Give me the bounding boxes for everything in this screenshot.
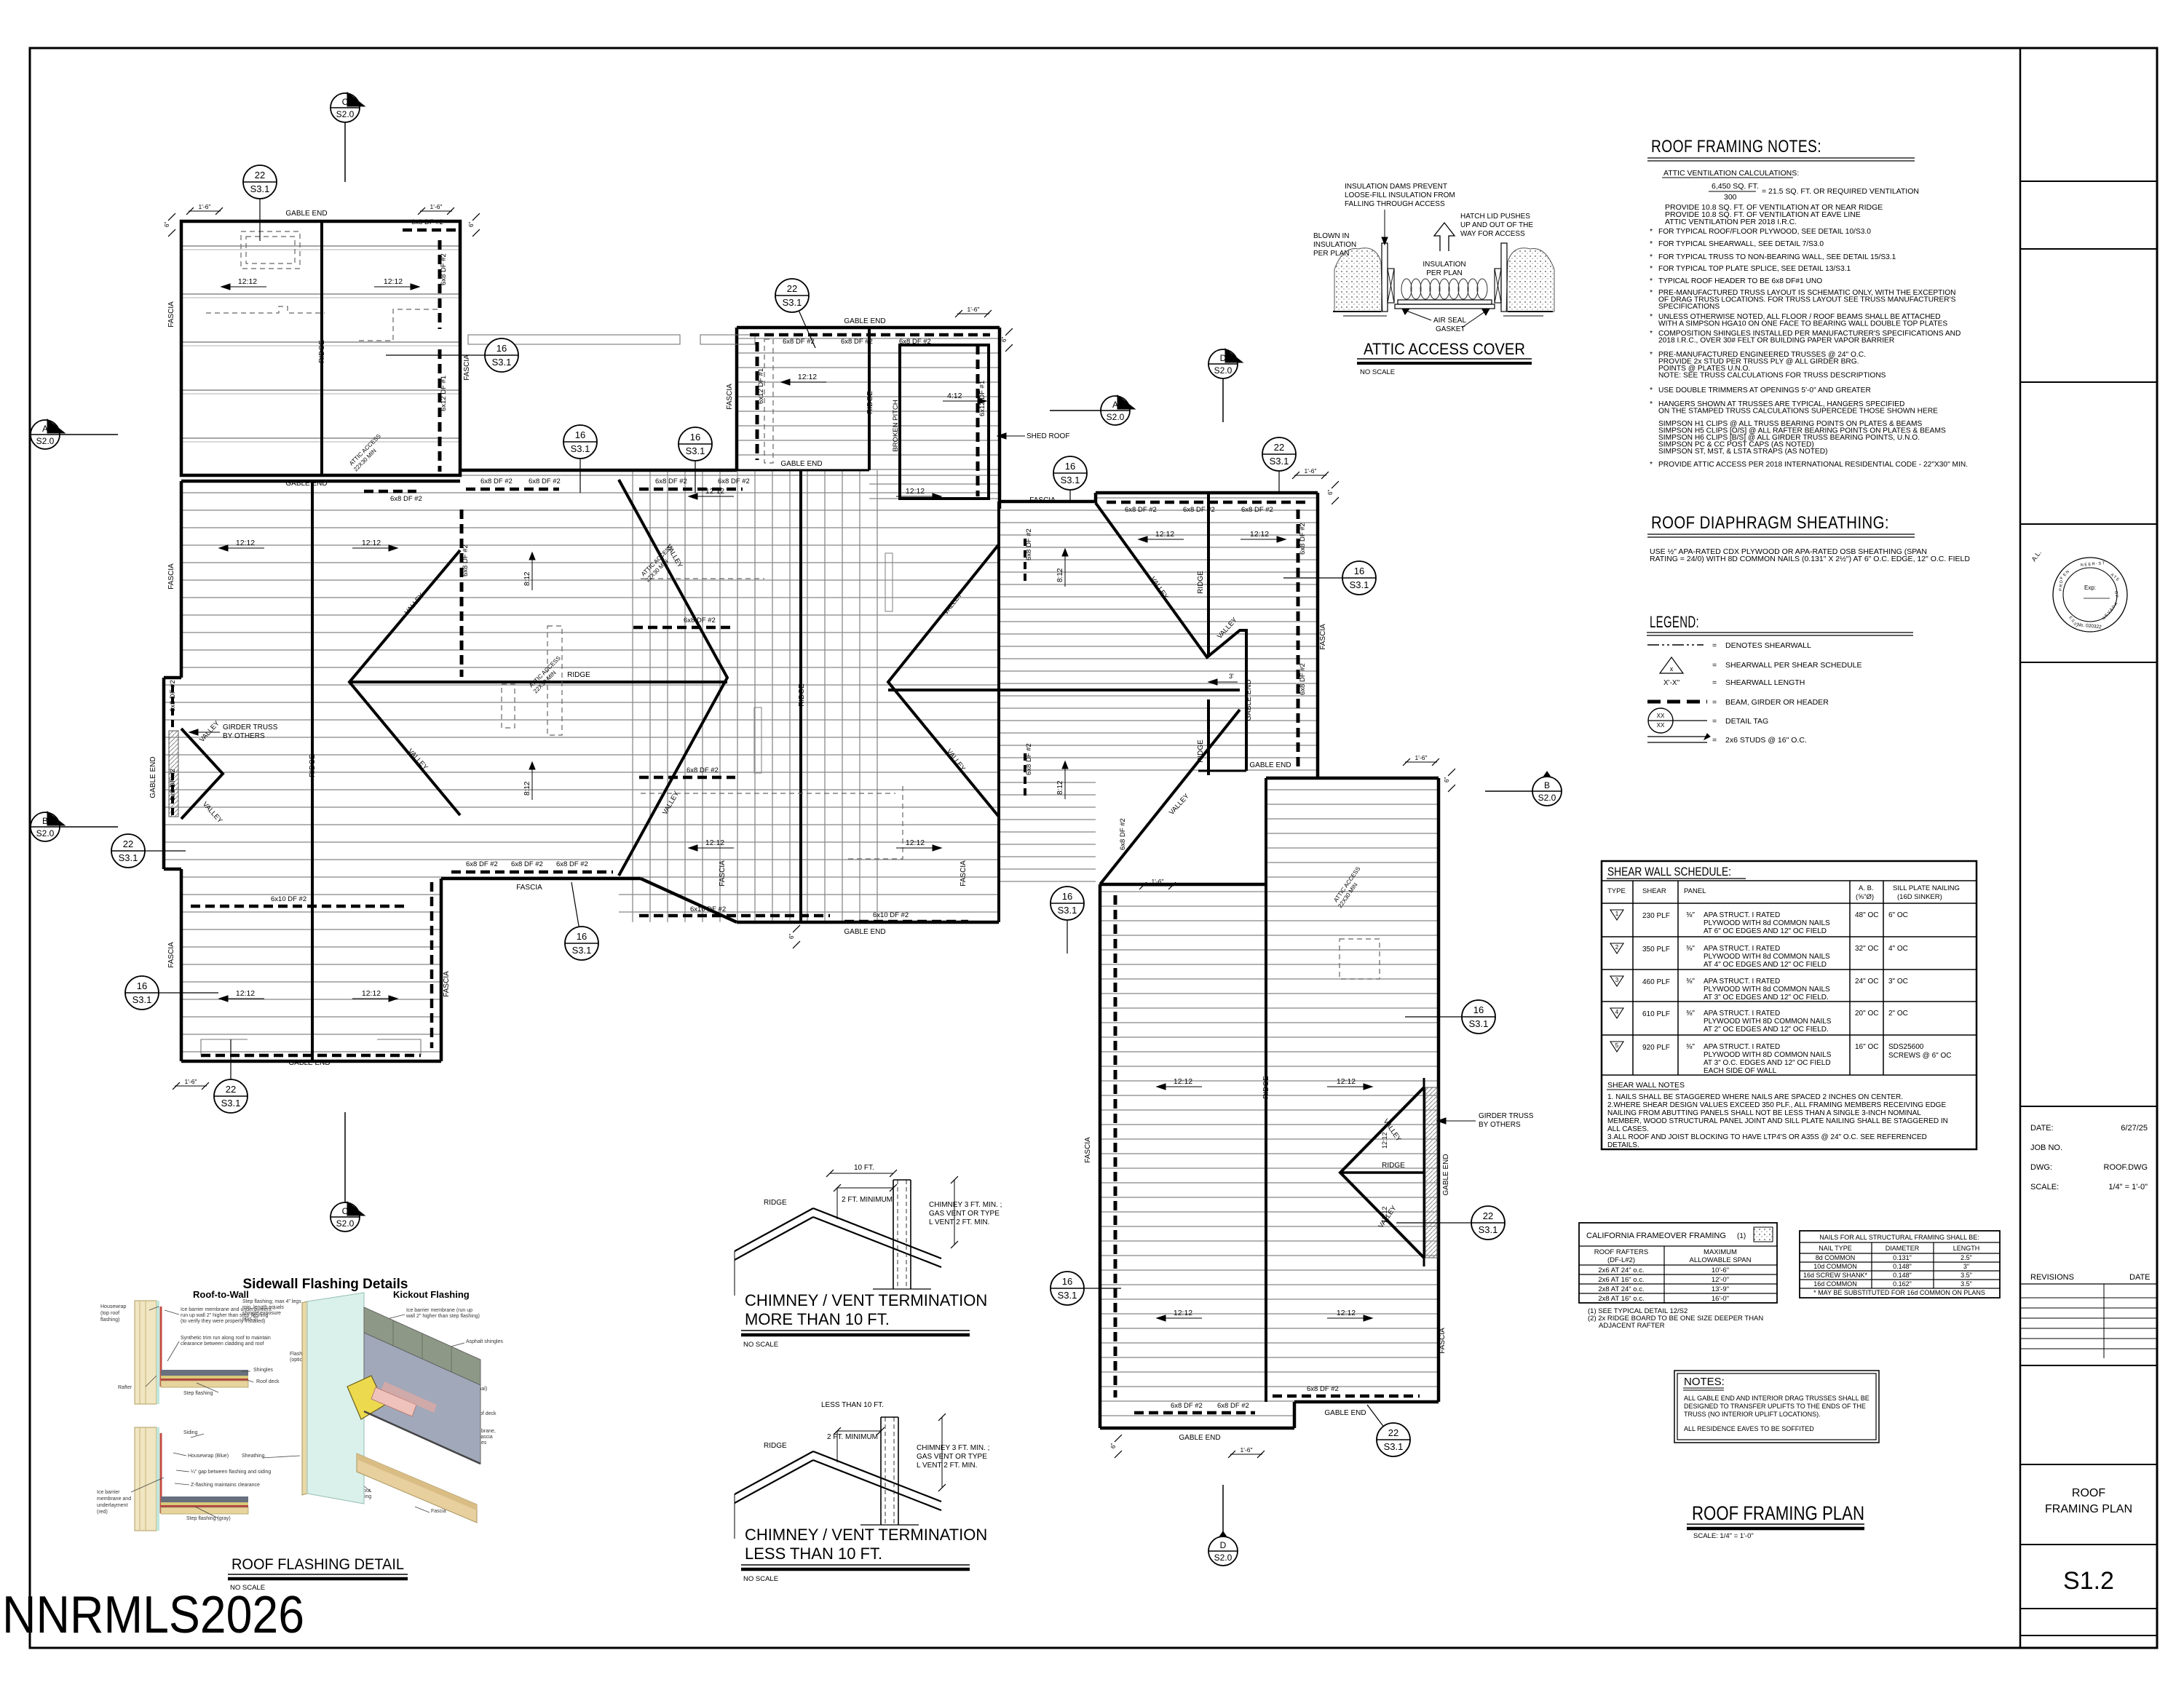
svg-text:3: 3	[1615, 977, 1619, 983]
svg-text:APA STRUCT. I RATED: APA STRUCT. I RATED	[1704, 945, 1780, 953]
svg-text:S3.1: S3.1	[1469, 1018, 1489, 1029]
svg-text:NAILS FOR ALL STRUCTURAL FRAMI: NAILS FOR ALL STRUCTURAL FRAMING SHALL B…	[1819, 1234, 1979, 1241]
svg-text:6x8 DF #2: 6x8 DF #2	[687, 766, 719, 774]
svg-text:NO SCALE: NO SCALE	[743, 1341, 778, 1349]
svg-text:=: =	[1712, 717, 1717, 726]
svg-text:SHEAR WALL SCHEDULE:: SHEAR WALL SCHEDULE:	[1607, 865, 1731, 879]
svg-text:APA STRUCT. I RATED: APA STRUCT. I RATED	[1704, 978, 1780, 986]
svg-text:10d COMMON: 10d COMMON	[1813, 1263, 1857, 1270]
svg-text:WAY FOR ACCESS: WAY FOR ACCESS	[1460, 230, 1525, 238]
svg-text:1. NAILS SHALL BE STAGGERED WH: 1. NAILS SHALL BE STAGGERED WHERE NAILS …	[1607, 1093, 1903, 1101]
svg-text:Ice barrier: Ice barrier	[97, 1490, 120, 1495]
svg-text:6,450 SQ. FT.: 6,450 SQ. FT.	[1712, 182, 1759, 191]
svg-text:ROOF FRAMING NOTES:: ROOF FRAMING NOTES:	[1651, 137, 1821, 156]
svg-text:RIDGE: RIDGE	[866, 391, 874, 414]
svg-text:SHEARWALL PER SHEAR SCHEDULE: SHEARWALL PER SHEAR SCHEDULE	[1725, 661, 1862, 670]
svg-text:SHED ROOF: SHED ROOF	[1026, 432, 1069, 440]
svg-text:4: 4	[1615, 1009, 1619, 1015]
svg-text:NO SCALE: NO SCALE	[1360, 368, 1395, 376]
svg-text:SDS25600: SDS25600	[1888, 1043, 1924, 1051]
svg-text:S3.1: S3.1	[132, 994, 152, 1005]
svg-text:*: *	[1650, 460, 1653, 469]
svg-text:22: 22	[1483, 1210, 1493, 1221]
svg-text:22: 22	[787, 283, 797, 294]
svg-text:S2.0: S2.0	[36, 436, 55, 446]
svg-text:6x12 DF #1: 6x12 DF #1	[440, 376, 448, 411]
svg-text:(16D SINKER): (16D SINKER)	[1897, 893, 1942, 901]
svg-text:*: *	[1650, 253, 1653, 261]
svg-text:6": 6"	[468, 222, 475, 227]
svg-text:GIRDER TRUSS: GIRDER TRUSS	[1479, 1112, 1534, 1120]
svg-text:6x8 DF #2: 6x8 DF #2	[480, 477, 513, 485]
svg-text:FASCIA: FASCIA	[1439, 1328, 1447, 1354]
svg-text:*: *	[1650, 277, 1653, 285]
svg-text:PANEL: PANEL	[1684, 887, 1706, 895]
svg-text:ROOF RAFTERS: ROOF RAFTERS	[1594, 1248, 1648, 1256]
svg-text:AT 4" OC EDGES AND 12" OC FIEL: AT 4" OC EDGES AND 12" OC FIELD	[1704, 961, 1827, 969]
svg-text:S3.1: S3.1	[571, 443, 590, 454]
svg-text:1'-6": 1'-6"	[1415, 754, 1428, 761]
svg-text:GABLE END: GABLE END	[844, 928, 885, 936]
svg-text:Sidewall Flashing Details: Sidewall Flashing Details	[242, 1277, 408, 1292]
svg-text:SCREWS @ 6" OC: SCREWS @ 6" OC	[1888, 1052, 1952, 1060]
svg-text:CHIMNEY 3 FT. MIN. ;: CHIMNEY 3 FT. MIN. ;	[929, 1201, 1002, 1209]
svg-text:460 PLF: 460 PLF	[1642, 978, 1670, 986]
svg-text:B: B	[42, 816, 48, 826]
svg-text:0.148": 0.148"	[1893, 1263, 1912, 1270]
svg-text:RIDGE: RIDGE	[1197, 740, 1205, 763]
svg-text:6": 6"	[164, 222, 170, 227]
svg-text:TRUSS (NO INTERIOR UPLIFT LOCA: TRUSS (NO INTERIOR UPLIFT LOCATIONS).	[1684, 1411, 1821, 1418]
svg-text:membrane and: membrane and	[97, 1496, 131, 1502]
svg-text:1'-6": 1'-6"	[199, 203, 211, 210]
svg-text:⅜": ⅜"	[1686, 945, 1695, 953]
svg-text:DESIGNED TO TRANSFER UPLIFTS T: DESIGNED TO TRANSFER UPLIFTS TO THE ENDS…	[1684, 1403, 1866, 1410]
svg-text:¼" gap between flashing and si: ¼" gap between flashing and siding	[191, 1470, 271, 1475]
svg-text:D: D	[1220, 353, 1227, 363]
svg-text:6/27/25: 6/27/25	[2121, 1124, 2148, 1133]
svg-text:S3.1: S3.1	[686, 445, 705, 456]
svg-text:B: B	[1544, 780, 1550, 790]
svg-text:RIDGE: RIDGE	[1262, 1076, 1270, 1099]
svg-text:=: =	[1712, 678, 1717, 687]
svg-text:PER PLAN: PER PLAN	[1426, 269, 1462, 277]
svg-text:Step flashing; max 4" legs: Step flashing; max 4" legs	[242, 1299, 301, 1304]
svg-text:32" OC: 32" OC	[1855, 945, 1878, 953]
svg-text:6x8 DF #2: 6x8 DF #2	[169, 680, 177, 712]
svg-text:16: 16	[1354, 566, 1364, 576]
svg-text:⅜": ⅜"	[1686, 1043, 1695, 1051]
svg-text:6": 6"	[1110, 1443, 1117, 1448]
svg-text:S3.1: S3.1	[1058, 905, 1077, 916]
svg-text:*: *	[1650, 350, 1653, 359]
svg-text:S3.1: S3.1	[572, 945, 592, 956]
svg-text:AT 6" OC EDGES AND 12" OC FIEL: AT 6" OC EDGES AND 12" OC FIELD	[1704, 927, 1827, 935]
svg-text:*: *	[1650, 386, 1653, 394]
svg-text:22: 22	[255, 170, 265, 181]
svg-text:C: C	[342, 97, 349, 107]
svg-text:DATE:: DATE:	[2030, 1124, 2054, 1133]
svg-text:2x8 AT 24" o.c.: 2x8 AT 24" o.c.	[1598, 1285, 1644, 1293]
svg-text:NAILING FROM ABUTTING PANELS S: NAILING FROM ABUTTING PANELS SHALL NOT B…	[1607, 1109, 1921, 1117]
svg-text:22: 22	[123, 838, 133, 849]
svg-text:Sheathing: Sheathing	[242, 1454, 265, 1459]
svg-text:13'-9": 13'-9"	[1712, 1285, 1729, 1293]
svg-text:16: 16	[1473, 1004, 1484, 1015]
svg-text:TYPE: TYPE	[1607, 887, 1626, 895]
svg-text:CHIMNEY / VENT TERMINATION: CHIMNEY / VENT TERMINATION	[745, 1291, 987, 1309]
svg-text:16: 16	[1062, 1276, 1072, 1287]
svg-text:6x8 DF #2: 6x8 DF #2	[841, 338, 873, 346]
svg-text:S3.1: S3.1	[1350, 579, 1369, 590]
svg-text:S3.1: S3.1	[783, 297, 802, 308]
svg-text:FASCIA: FASCIA	[167, 942, 175, 968]
svg-text:1: 1	[1615, 911, 1619, 917]
svg-text:APA STRUCT. I RATED: APA STRUCT. I RATED	[1704, 911, 1780, 919]
svg-text:4" OC: 4" OC	[1888, 945, 1908, 953]
svg-text:ADJACENT RAFTER: ADJACENT RAFTER	[1599, 1322, 1665, 1330]
svg-text:16: 16	[575, 429, 585, 440]
svg-text:24" OC: 24" OC	[1855, 978, 1878, 986]
svg-text:12:12: 12:12	[798, 373, 817, 381]
svg-text:*: *	[1650, 329, 1653, 338]
svg-text:GABLE END: GABLE END	[285, 480, 327, 488]
svg-text:=: =	[1712, 661, 1717, 670]
svg-text:PROVIDE ATTIC ACCESS PER 2018: PROVIDE ATTIC ACCESS PER 2018 INTERNATIO…	[1658, 461, 1968, 469]
svg-text:L VENT 2 FT. MIN.: L VENT 2 FT. MIN.	[917, 1462, 977, 1470]
svg-text:16: 16	[577, 931, 587, 942]
svg-text:XX: XX	[1657, 722, 1665, 729]
svg-text:6x12 DF #1: 6x12 DF #1	[757, 368, 765, 404]
svg-text:INSULATION: INSULATION	[1423, 261, 1465, 269]
svg-text:12:12: 12:12	[362, 539, 381, 547]
svg-text:Housewrap (Blue): Housewrap (Blue)	[188, 1454, 229, 1459]
svg-text:6x8 DF #2: 6x8 DF #2	[684, 616, 716, 625]
svg-text:RIDGE: RIDGE	[567, 671, 590, 679]
svg-text:GABLE END: GABLE END	[780, 460, 822, 468]
svg-text:12:12: 12:12	[1250, 530, 1269, 539]
svg-text:S2.0: S2.0	[1214, 1553, 1233, 1563]
svg-text:SPECIFICATIONS: SPECIFICATIONS	[1658, 303, 1720, 311]
svg-text:1/4" = 1'-0": 1/4" = 1'-0"	[2108, 1183, 2148, 1192]
svg-text:FASCIA: FASCIA	[719, 860, 727, 887]
svg-text:Shingles: Shingles	[253, 1368, 273, 1373]
svg-text:6x8 DF #2: 6x8 DF #2	[1299, 523, 1307, 555]
svg-text:Step flashing (gray): Step flashing (gray)	[186, 1516, 231, 1521]
svg-text:CHIMNEY / VENT TERMINATION: CHIMNEY / VENT TERMINATION	[745, 1526, 987, 1544]
svg-text:S2.0: S2.0	[336, 109, 355, 119]
svg-text:ALL GABLE END AND INTERIOR DRA: ALL GABLE END AND INTERIOR DRAG TRUSSES …	[1684, 1395, 1870, 1402]
svg-text:ALL CASES.: ALL CASES.	[1607, 1125, 1649, 1133]
svg-text:*: *	[1650, 264, 1653, 273]
svg-text:22: 22	[226, 1084, 236, 1095]
svg-text:6x8 DF #2: 6x8 DF #2	[1025, 743, 1033, 775]
svg-text:12:12: 12:12	[906, 487, 925, 496]
svg-text:6x8 DF #2: 6x8 DF #2	[1183, 506, 1215, 514]
svg-text:RIDGE: RIDGE	[764, 1442, 787, 1450]
svg-text:ROOF FRAMING PLAN: ROOF FRAMING PLAN	[1692, 1502, 1864, 1524]
svg-text:⅜": ⅜"	[1686, 911, 1695, 919]
svg-text:A. B.: A. B.	[1859, 884, 1874, 892]
svg-text:NOTES:: NOTES:	[1684, 1376, 1725, 1388]
svg-text:REVISIONS: REVISIONS	[2030, 1273, 2074, 1282]
svg-text:S1.2: S1.2	[2063, 1567, 2114, 1595]
svg-text:FASCIA: FASCIA	[516, 884, 542, 892]
svg-text:plus 2": plus 2"	[242, 1317, 258, 1322]
svg-text:16" OC: 16" OC	[1855, 1043, 1878, 1051]
svg-text:6x10 DF #2: 6x10 DF #2	[271, 895, 306, 903]
svg-text:DETAILS.: DETAILS.	[1607, 1141, 1639, 1149]
svg-text:⅜": ⅜"	[1686, 978, 1695, 986]
svg-text:AIR SEAL: AIR SEAL	[1433, 317, 1466, 325]
svg-text:WITH A SIMPSON HGA10 ON ONE FA: WITH A SIMPSON HGA10 ON ONE FACE TO BEAR…	[1658, 320, 1947, 328]
svg-text:NO SCALE: NO SCALE	[743, 1575, 778, 1583]
svg-text:GAS VENT OR TYPE: GAS VENT OR TYPE	[929, 1210, 1000, 1218]
svg-text:6x8 DF #2: 6x8 DF #2	[655, 477, 687, 485]
svg-text:6x8 DF #2: 6x8 DF #2	[169, 769, 177, 801]
svg-text:LENGTH: LENGTH	[1953, 1245, 1980, 1252]
svg-text:10 FT.: 10 FT.	[854, 1164, 874, 1172]
svg-text:FOR TYPICAL TOP PLATE SPLICE,: FOR TYPICAL TOP PLATE SPLICE, SEE DETAIL…	[1658, 265, 1851, 273]
svg-text:16'-0": 16'-0"	[1712, 1295, 1729, 1303]
svg-text:C: C	[342, 1206, 349, 1216]
svg-text:TYPICAL ROOF HEADER TO BE 6x8: TYPICAL ROOF HEADER TO BE 6x8 DF#1 UNO	[1658, 277, 1822, 285]
svg-text:6x8 DF #2: 6x8 DF #2	[1025, 528, 1033, 560]
svg-text:12:12: 12:12	[384, 277, 403, 286]
svg-text:6x8 DF #2: 6x8 DF #2	[466, 860, 498, 868]
svg-text:GABLE END: GABLE END	[285, 210, 327, 218]
svg-text:Roof deck: Roof deck	[256, 1379, 280, 1384]
svg-text:48" OC: 48" OC	[1855, 911, 1878, 919]
svg-text:FRAMING PLAN: FRAMING PLAN	[2045, 1503, 2132, 1515]
svg-text:AT 3" O.C. EDGES AND 12" OC FI: AT 3" O.C. EDGES AND 12" OC FIELD	[1704, 1059, 1831, 1067]
svg-text:6x8 DF #2: 6x8 DF #2	[1125, 506, 1157, 514]
svg-text:Asphalt shingles: Asphalt shingles	[466, 1339, 503, 1344]
svg-text:EACH SIDE OF WALL: EACH SIDE OF WALL	[1704, 1067, 1777, 1075]
svg-text:6x8 DF #2: 6x8 DF #2	[556, 860, 588, 868]
svg-text:S3.1: S3.1	[119, 852, 138, 863]
svg-text:SILL PLATE NAILING: SILL PLATE NAILING	[1893, 884, 1960, 892]
svg-text:920 PLF: 920 PLF	[1642, 1044, 1670, 1052]
svg-text:GABLE END: GABLE END	[1324, 1409, 1366, 1417]
svg-text:FALLING THROUGH ACCESS: FALLING THROUGH ACCESS	[1345, 200, 1445, 208]
svg-text:2x6 STUDS @ 16" O.C.: 2x6 STUDS @ 16" O.C.	[1725, 736, 1807, 745]
svg-text:flashing): flashing)	[100, 1317, 119, 1323]
svg-text:LOOSE-FILL INSULATION FROM: LOOSE-FILL INSULATION FROM	[1345, 191, 1455, 199]
svg-text:2: 2	[1615, 944, 1619, 951]
svg-text:1'-6": 1'-6"	[1152, 878, 1164, 885]
svg-text:underlayment: underlayment	[97, 1503, 127, 1508]
svg-text:APA STRUCT. I RATED: APA STRUCT. I RATED	[1704, 1010, 1780, 1018]
svg-text:S2.0: S2.0	[1538, 793, 1556, 803]
svg-text:12:12: 12:12	[906, 838, 925, 847]
svg-text:ROOF.DWG: ROOF.DWG	[2104, 1163, 2148, 1172]
svg-text:S3.1: S3.1	[1384, 1441, 1404, 1452]
svg-text:S2.0: S2.0	[1214, 365, 1233, 376]
svg-text:GABLE END: GABLE END	[844, 317, 885, 325]
svg-text:SCALE: 1/4" = 1'-0": SCALE: 1/4" = 1'-0"	[1693, 1532, 1754, 1540]
svg-text:MORE THAN 10 FT.: MORE THAN 10 FT.	[745, 1310, 890, 1328]
svg-text:APA STRUCT. I RATED: APA STRUCT. I RATED	[1704, 1043, 1780, 1051]
svg-text:DIAMETER: DIAMETER	[1886, 1245, 1920, 1252]
svg-text:RATING = 24/0) WITH 8D COMMON: RATING = 24/0) WITH 8D COMMON NAILS (0.1…	[1650, 555, 1970, 563]
svg-text:ROOF: ROOF	[2072, 1487, 2105, 1499]
svg-text:INSULATION DAMS PREVENT: INSULATION DAMS PREVENT	[1345, 183, 1447, 191]
svg-text:= 21.5 SQ. FT. OR REQUIRED VEN: = 21.5 SQ. FT. OR REQUIRED VENTILATION	[1762, 187, 1919, 196]
svg-text:Kickout Flashing: Kickout Flashing	[393, 1289, 470, 1300]
svg-text:6x8 DF #2: 6x8 DF #2	[1307, 1385, 1339, 1393]
svg-text:D: D	[1220, 1540, 1227, 1550]
svg-text:(⅝"Ø): (⅝"Ø)	[1856, 893, 1874, 901]
svg-text:3.5": 3.5"	[1961, 1280, 1972, 1288]
svg-text:6": 6"	[1001, 337, 1008, 342]
svg-text:RIDGE: RIDGE	[764, 1199, 787, 1207]
svg-text:16: 16	[1065, 461, 1075, 472]
svg-text:X'-X": X'-X"	[1663, 679, 1680, 687]
svg-text:S2.0: S2.0	[36, 828, 55, 838]
svg-text:UP AND OUT OF THE: UP AND OUT OF THE	[1460, 221, 1533, 229]
svg-text:RIDGE: RIDGE	[309, 754, 317, 777]
svg-text:ATTIC VENTILATION PER 2018 I.R: ATTIC VENTILATION PER 2018 I.R.C.	[1665, 218, 1797, 226]
svg-text:PLYWOOD WITH 8d COMMON NAILS: PLYWOOD WITH 8d COMMON NAILS	[1704, 986, 1830, 994]
svg-text:NOTE: SEE TRUSS CALCULATIONS F: NOTE: SEE TRUSS CALCULATIONS FOR TRUSS D…	[1658, 372, 1886, 380]
svg-text:DETAIL TAG: DETAIL TAG	[1725, 717, 1768, 726]
svg-text:ROOF DIAPHRAGM SHEATHING:: ROOF DIAPHRAGM SHEATHING:	[1651, 513, 1889, 533]
svg-text:A: A	[1112, 400, 1118, 410]
svg-text:1'-6": 1'-6"	[968, 306, 980, 313]
svg-text:PLYWOOD WITH 8d COMMON NAILS: PLYWOOD WITH 8d COMMON NAILS	[1704, 919, 1830, 927]
svg-text:6x8 DF #2: 6x8 DF #2	[1299, 663, 1307, 695]
svg-text:GABLE END: GABLE END	[1249, 761, 1291, 769]
svg-text:3': 3'	[1229, 673, 1234, 680]
svg-text:12:12: 12:12	[1155, 530, 1174, 539]
svg-text:2x8 AT 16" o.c.: 2x8 AT 16" o.c.	[1598, 1295, 1644, 1303]
svg-text:6": 6"	[788, 934, 795, 939]
svg-text:S2.0: S2.0	[1107, 412, 1125, 422]
svg-text:2.5": 2.5"	[1961, 1254, 1972, 1261]
svg-text:USE DOUBLE TRIMMERS AT OPENING: USE DOUBLE TRIMMERS AT OPENINGS 5'-0" AN…	[1658, 386, 1871, 394]
svg-text:16d SCREW SHANK*: 16d SCREW SHANK*	[1803, 1272, 1868, 1279]
svg-text:6x8 DF #2: 6x8 DF #2	[511, 860, 543, 868]
svg-text:L VENT 2 FT. MIN.: L VENT 2 FT. MIN.	[929, 1218, 989, 1226]
svg-text:6x8 DF #2: 6x8 DF #2	[1241, 506, 1273, 514]
svg-text:BROKEN PITCH: BROKEN PITCH	[892, 400, 900, 451]
svg-text:6x10 DF #2: 6x10 DF #2	[690, 905, 726, 913]
svg-text:2" OC: 2" OC	[1888, 1010, 1908, 1018]
svg-text:shingle exposure: shingle exposure	[242, 1311, 281, 1316]
svg-text:16: 16	[137, 980, 147, 991]
svg-text:RIDGE: RIDGE	[1197, 571, 1205, 594]
svg-text:12:12: 12:12	[1174, 1309, 1192, 1317]
svg-text:1'-6": 1'-6"	[1241, 1446, 1253, 1454]
svg-text:ATTIC VENTILATION CALCULATIONS: ATTIC VENTILATION CALCULATIONS:	[1663, 169, 1799, 178]
svg-text:GABLE END: GABLE END	[149, 756, 157, 798]
svg-text:S3.1: S3.1	[1058, 1290, 1077, 1301]
svg-text:S3.1: S3.1	[492, 357, 512, 368]
svg-text:PLYWOOD WITH 8D COMMON NAILS: PLYWOOD WITH 8D COMMON NAILS	[1704, 1018, 1832, 1026]
svg-text:FASCIA: FASCIA	[443, 971, 451, 997]
svg-text:Rafter: Rafter	[118, 1385, 132, 1390]
svg-text:Step flashing: Step flashing	[183, 1391, 213, 1396]
svg-text:3" OC: 3" OC	[1888, 978, 1908, 986]
svg-text:2018 I.R.C., OVER 30# FELT OR: 2018 I.R.C., OVER 30# FELT OR BUILDING P…	[1658, 337, 1894, 345]
svg-text:1'-6": 1'-6"	[430, 203, 443, 210]
svg-text:6x8 DF #2: 6x8 DF #2	[1119, 818, 1127, 850]
svg-text:10'-6": 10'-6"	[1712, 1266, 1729, 1274]
svg-text:300: 300	[1724, 193, 1737, 202]
svg-text:x: x	[1670, 665, 1674, 673]
svg-text:*: *	[1650, 239, 1653, 248]
svg-text:=: =	[1712, 641, 1717, 650]
svg-text:8d COMMON: 8d COMMON	[1816, 1254, 1856, 1261]
svg-text:12:12: 12:12	[1337, 1077, 1356, 1086]
svg-text:S3.1: S3.1	[221, 1098, 241, 1109]
svg-text:6x8 DF #2: 6x8 DF #2	[718, 477, 750, 485]
svg-text:clearance between cladding and: clearance between cladding and roof	[181, 1341, 264, 1347]
svg-text:BY OTHERS: BY OTHERS	[1479, 1121, 1521, 1129]
svg-text:* MAY BE SUBSTITUTED FOR 16d C: * MAY BE SUBSTITUTED FOR 16d COMMON ON P…	[1813, 1289, 1985, 1296]
svg-text:GAS VENT OR TYPE: GAS VENT OR TYPE	[917, 1453, 987, 1461]
svg-text:16: 16	[1062, 891, 1072, 902]
svg-text:CALIFORNIA FRAMEOVER FRAMING: CALIFORNIA FRAMEOVER FRAMING	[1586, 1232, 1726, 1240]
svg-text:NAIL TYPE: NAIL TYPE	[1819, 1245, 1852, 1252]
svg-text:AT 3" OC EDGES AND 12" OC FIEL: AT 3" OC EDGES AND 12" OC FIELD.	[1704, 994, 1829, 1002]
svg-text:GABLE END: GABLE END	[1245, 679, 1253, 721]
svg-text:BEAM, GIRDER OR HEADER: BEAM, GIRDER OR HEADER	[1725, 698, 1829, 707]
svg-text:GABLE END: GABLE END	[1179, 1434, 1220, 1442]
svg-text:FASCIA: FASCIA	[726, 384, 734, 410]
svg-text:16d COMMON: 16d COMMON	[1813, 1280, 1857, 1288]
svg-text:5: 5	[1615, 1042, 1619, 1049]
svg-text:8:12: 8:12	[523, 571, 531, 586]
svg-text:6x8 DF #2: 6x8 DF #2	[1217, 1402, 1249, 1410]
svg-text:DATE: DATE	[2129, 1273, 2151, 1282]
svg-text:NNRMLS2026: NNRMLS2026	[2, 1586, 304, 1644]
svg-text:6x8 DF #2: 6x8 DF #2	[390, 495, 422, 503]
svg-text:2 FT. MINIMUM: 2 FT. MINIMUM	[827, 1433, 878, 1441]
svg-text:0.162": 0.162"	[1893, 1280, 1912, 1288]
svg-text:6x8 DF #2: 6x8 DF #2	[440, 253, 448, 285]
svg-text:12:12: 12:12	[705, 838, 724, 847]
svg-text:FASCIA: FASCIA	[1319, 624, 1327, 650]
svg-text:12:12: 12:12	[236, 539, 255, 547]
svg-text:12:12: 12:12	[236, 989, 255, 998]
svg-text:16: 16	[496, 343, 507, 354]
svg-text:ATTIC ACCESS COVER: ATTIC ACCESS COVER	[1364, 340, 1525, 358]
svg-text:12:12: 12:12	[705, 487, 724, 496]
svg-text:8:12: 8:12	[1056, 780, 1064, 795]
svg-text:BY OTHERS: BY OTHERS	[223, 732, 265, 740]
svg-text:DENOTES SHEARWALL: DENOTES SHEARWALL	[1725, 641, 1811, 650]
svg-text:12:12: 12:12	[238, 277, 257, 286]
svg-text:*: *	[1650, 400, 1653, 408]
svg-text:12:12: 12:12	[362, 989, 381, 998]
svg-text:4:12: 4:12	[947, 392, 962, 400]
svg-text:SHEAR: SHEAR	[1642, 887, 1666, 895]
svg-text:FOR TYPICAL SHEARWALL, SEE DET: FOR TYPICAL SHEARWALL, SEE DETAIL 7/S3.0	[1658, 240, 1824, 248]
svg-text:=: =	[1712, 698, 1717, 707]
svg-text:(top roof: (top roof	[100, 1311, 119, 1316]
svg-text:FASCIA: FASCIA	[960, 860, 968, 887]
svg-text:16: 16	[690, 432, 700, 443]
svg-text:6": 6"	[1444, 777, 1450, 782]
svg-text:Siding: Siding	[183, 1430, 198, 1435]
svg-text:*: *	[1650, 227, 1653, 236]
svg-text:Synthetic trim run along roof: Synthetic trim run along roof to maintai…	[181, 1336, 271, 1341]
svg-text:FASCIA: FASCIA	[167, 563, 175, 590]
svg-text:(DF-L#2): (DF-L#2)	[1607, 1256, 1635, 1264]
svg-text:0.131": 0.131"	[1893, 1254, 1912, 1261]
